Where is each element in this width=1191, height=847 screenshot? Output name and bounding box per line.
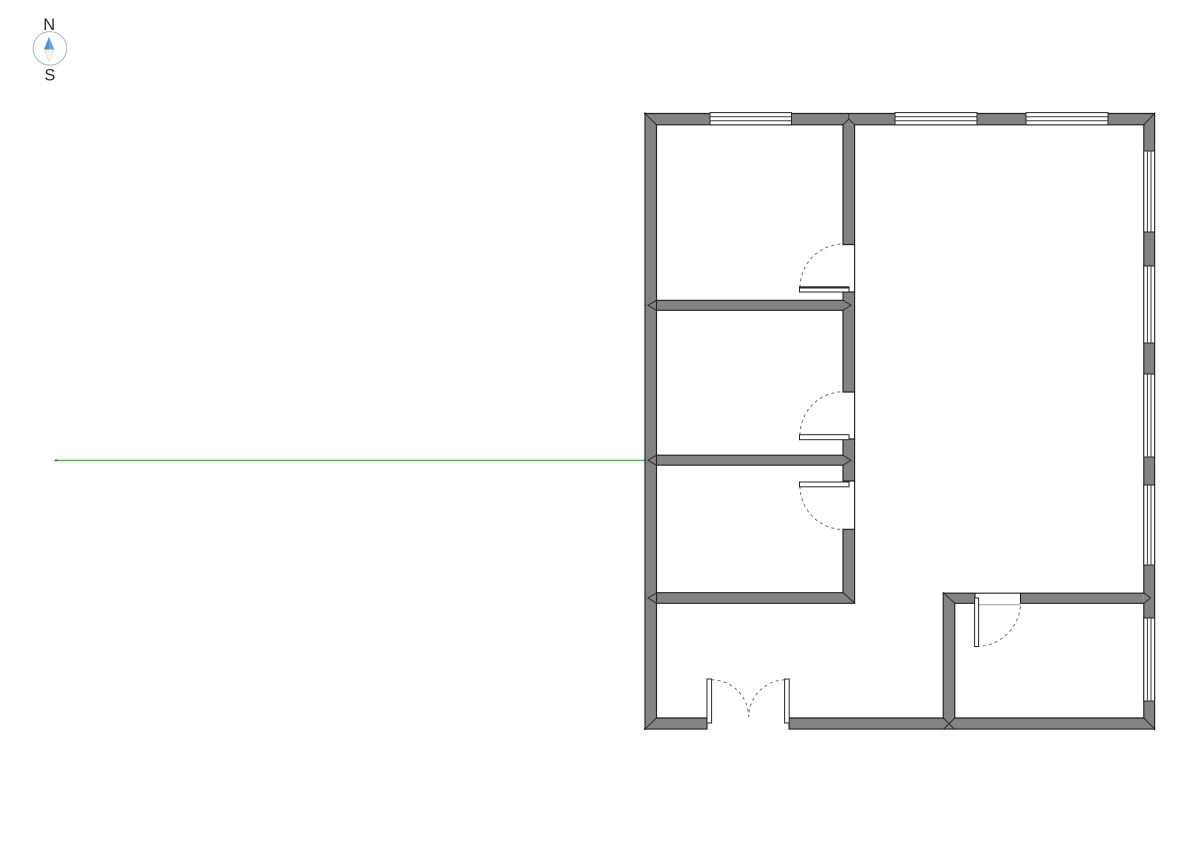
svg-text:S: S bbox=[44, 67, 55, 85]
